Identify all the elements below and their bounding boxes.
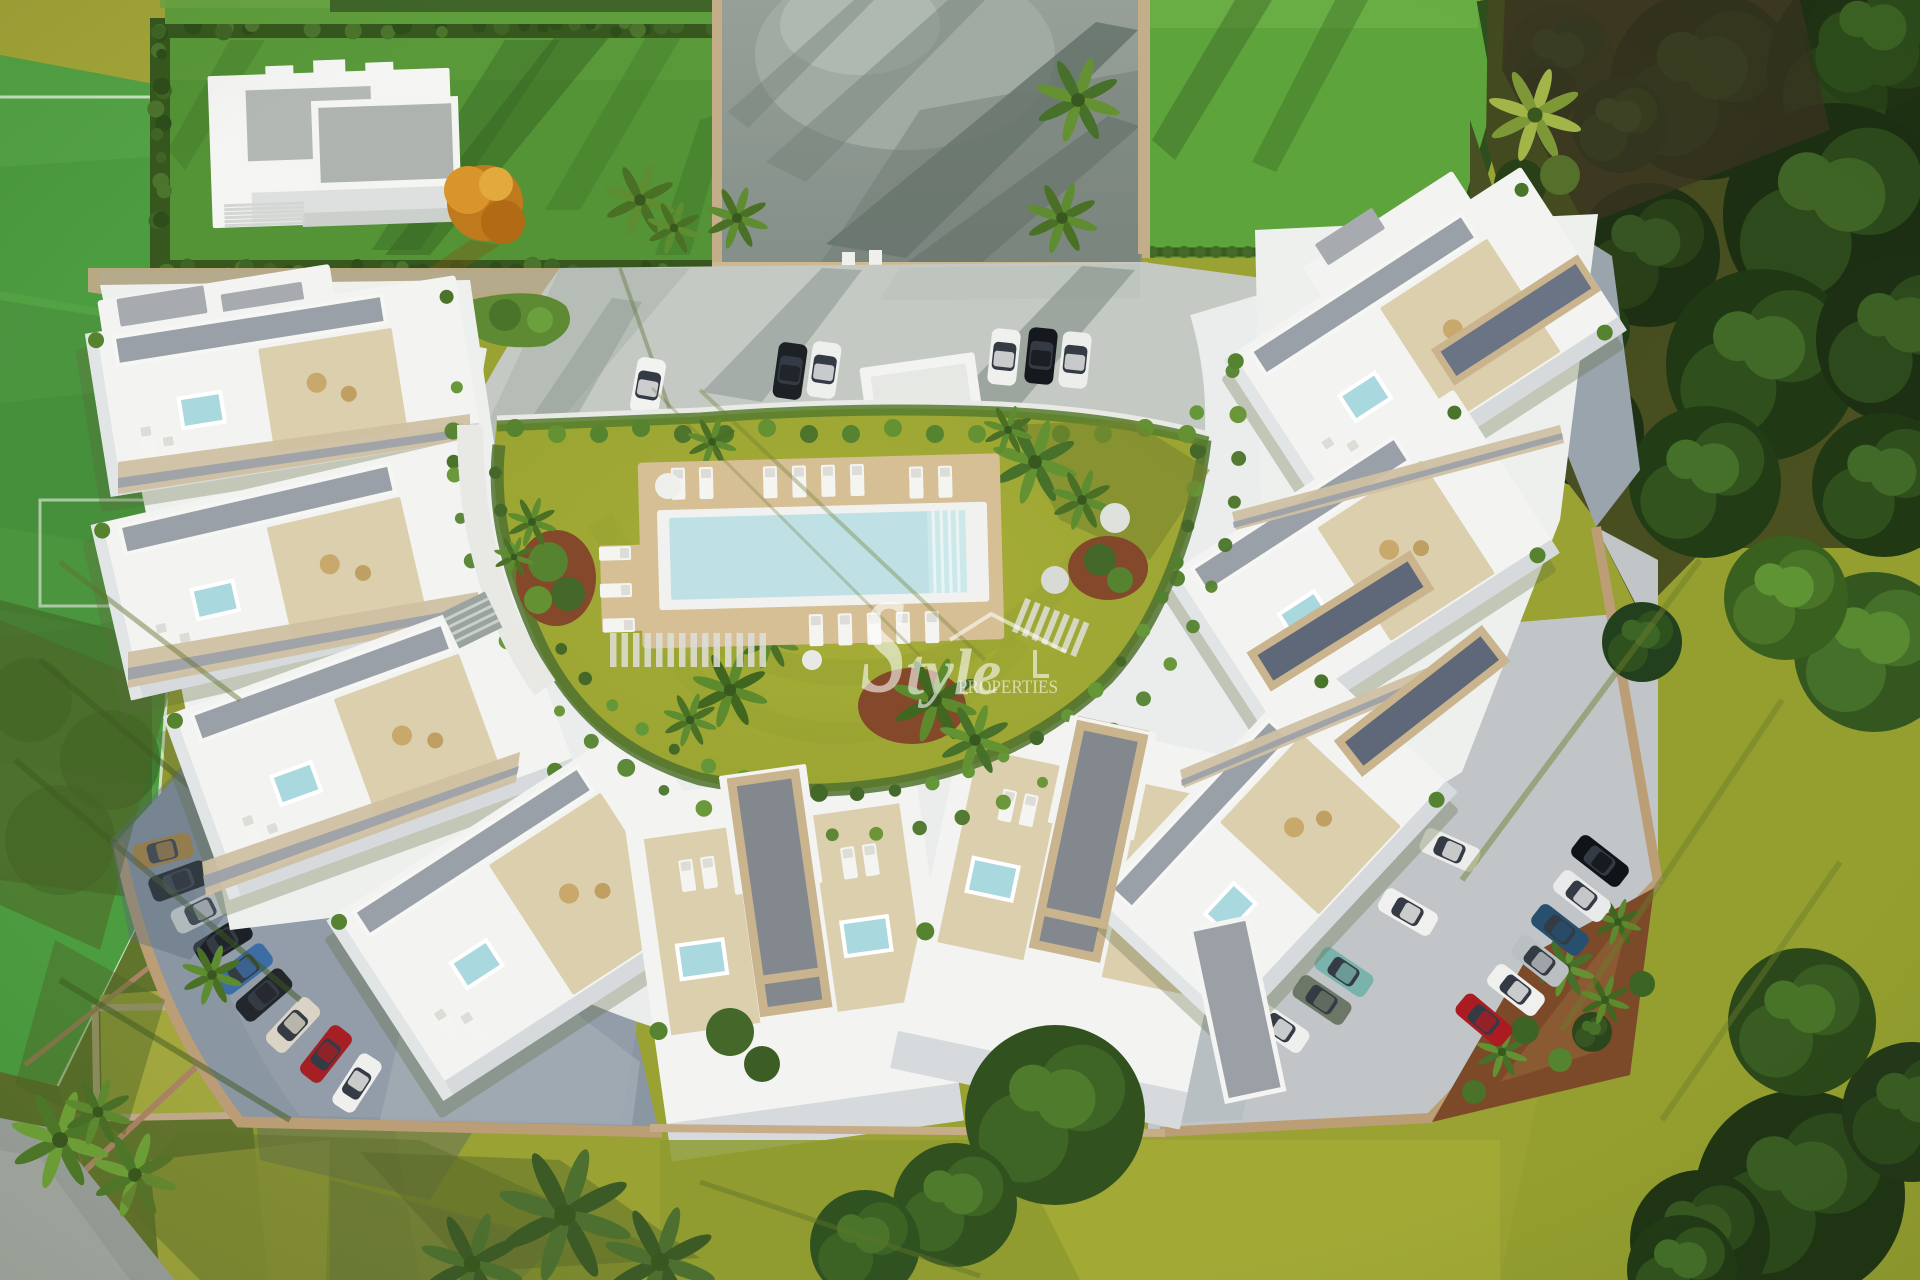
svg-text:tyle: tyle (906, 636, 1001, 709)
svg-text:S: S (860, 572, 907, 722)
svg-text:PROPERTIES: PROPERTIES (958, 677, 1058, 698)
